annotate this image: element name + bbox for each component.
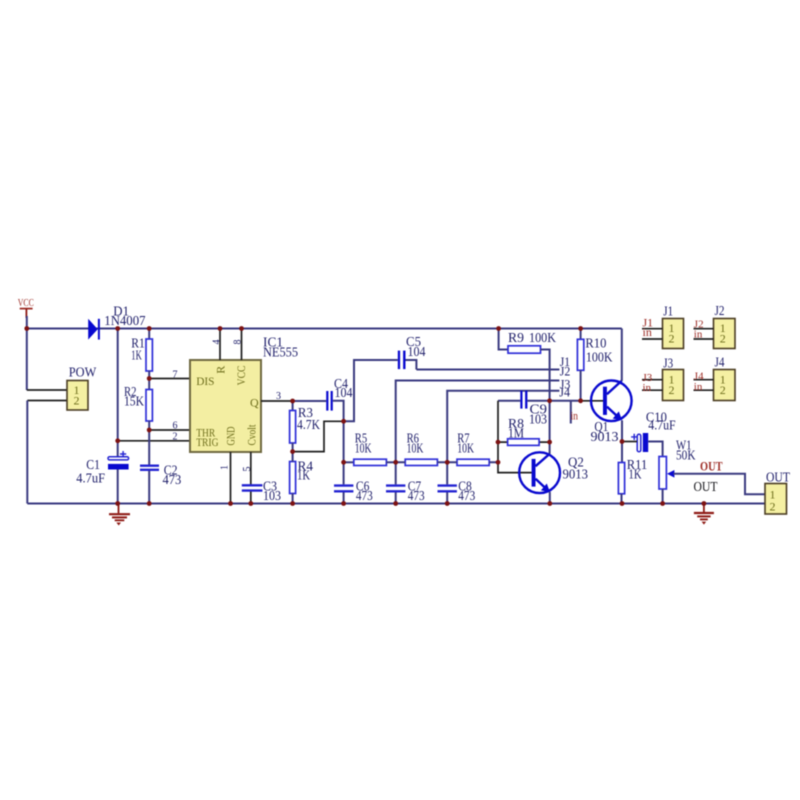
svg-text:473: 473	[163, 473, 182, 488]
svg-text:J4: J4	[715, 356, 725, 371]
svg-text:in: in	[571, 408, 579, 422]
svg-text:2: 2	[173, 432, 178, 443]
svg-text:100K: 100K	[586, 350, 613, 365]
svg-text:15K: 15K	[124, 395, 144, 410]
svg-text:4.7K: 4.7K	[297, 418, 320, 433]
svg-text:473: 473	[356, 489, 373, 504]
svg-text:2: 2	[720, 332, 726, 346]
svg-text:NE555: NE555	[263, 346, 298, 361]
svg-text:1K: 1K	[131, 349, 142, 364]
svg-text:10K: 10K	[457, 442, 474, 457]
svg-text:100K: 100K	[529, 331, 556, 346]
svg-text:1: 1	[220, 465, 231, 470]
svg-text:in: in	[694, 381, 703, 393]
svg-text:GND: GND	[224, 426, 238, 445]
svg-text:104: 104	[335, 386, 353, 401]
svg-text:J1: J1	[663, 305, 673, 320]
svg-text:6: 6	[173, 421, 178, 432]
svg-text:9013: 9013	[591, 430, 619, 445]
svg-text:473: 473	[408, 489, 425, 504]
svg-text:R9: R9	[508, 331, 524, 346]
svg-text:OUT: OUT	[694, 479, 719, 494]
svg-text:1K: 1K	[629, 468, 642, 483]
svg-text:4.7uF: 4.7uF	[648, 419, 675, 434]
svg-text:Cvolt: Cvolt	[244, 424, 258, 446]
svg-text:2: 2	[720, 383, 726, 397]
svg-text:2: 2	[74, 394, 80, 408]
svg-text:103: 103	[263, 489, 281, 504]
svg-text:1N4007: 1N4007	[104, 314, 145, 329]
svg-text:R: R	[214, 366, 228, 374]
svg-text:104: 104	[408, 345, 426, 360]
svg-text:7: 7	[173, 370, 178, 381]
svg-text:1M: 1M	[508, 426, 524, 441]
svg-text:Q: Q	[250, 396, 259, 410]
svg-text:2: 2	[770, 499, 776, 513]
svg-text:2: 2	[669, 383, 675, 397]
svg-text:1K: 1K	[297, 469, 310, 484]
svg-text:VCC: VCC	[18, 297, 34, 309]
svg-text:J2: J2	[715, 304, 725, 319]
svg-text:50K: 50K	[676, 448, 696, 463]
svg-text:in: in	[643, 382, 652, 394]
svg-text:2: 2	[669, 332, 675, 346]
svg-text:4.7uF: 4.7uF	[76, 472, 105, 487]
svg-text:9013: 9013	[563, 467, 589, 482]
svg-text:4: 4	[212, 340, 223, 345]
svg-text:POW: POW	[69, 366, 97, 381]
svg-text:10K: 10K	[355, 442, 372, 457]
svg-text:473: 473	[458, 489, 475, 504]
svg-text:J4: J4	[559, 385, 570, 400]
svg-text:10K: 10K	[407, 442, 424, 457]
svg-text:in: in	[694, 328, 703, 340]
svg-text:TRIG: TRIG	[196, 435, 219, 449]
svg-text:OUT: OUT	[700, 459, 723, 473]
svg-text:103: 103	[529, 412, 547, 427]
svg-text:VCC: VCC	[234, 366, 248, 386]
svg-text:in: in	[643, 325, 652, 339]
svg-text:8: 8	[233, 340, 244, 345]
svg-text:DIS: DIS	[196, 374, 214, 388]
